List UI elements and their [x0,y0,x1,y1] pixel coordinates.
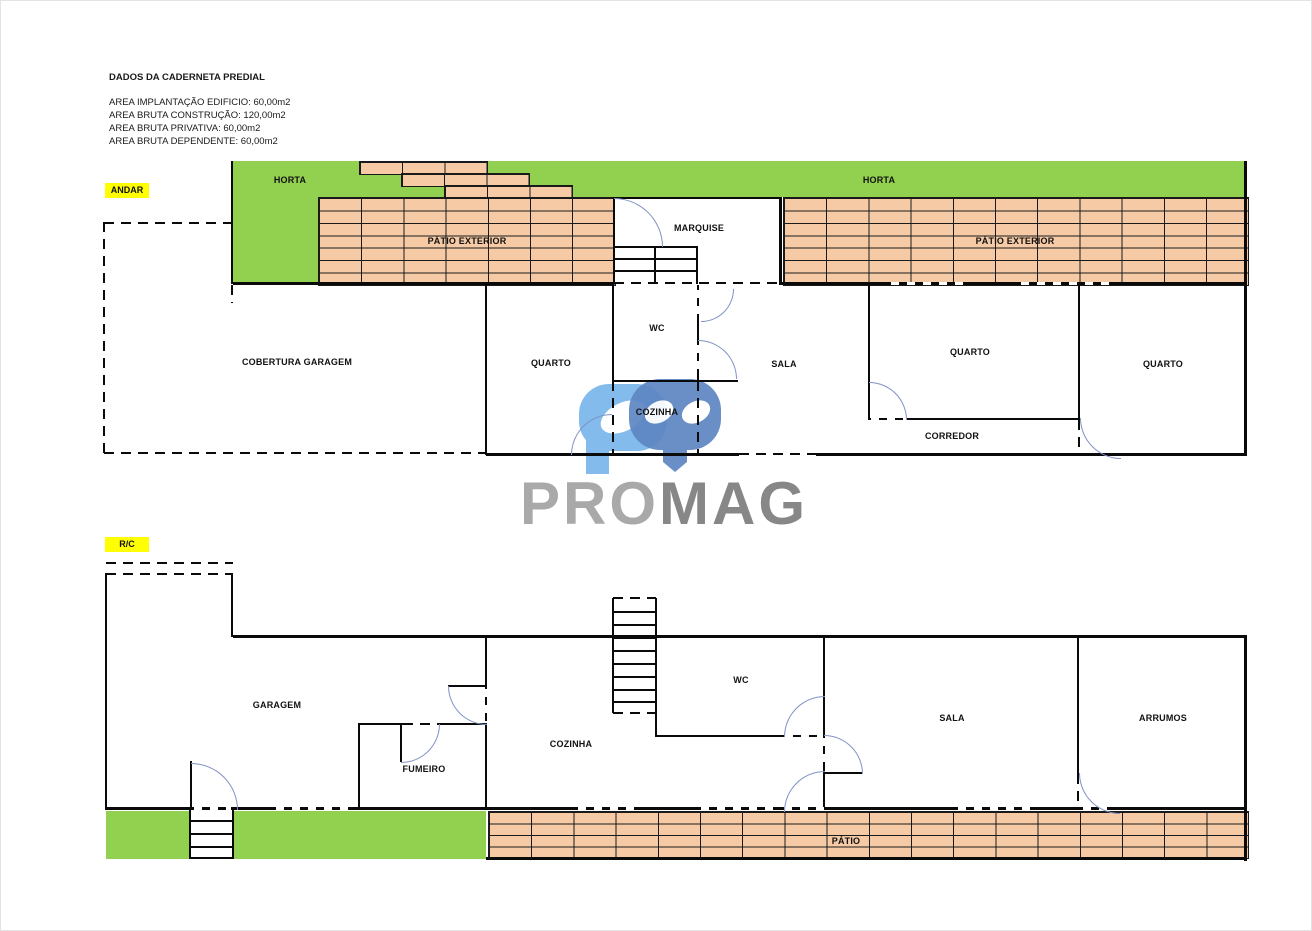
wall [1244,635,1247,861]
wall [233,635,1247,638]
wc-rc-label: WC [733,675,748,685]
door-arc [191,763,238,810]
wall [614,197,781,199]
stair-tread [614,270,698,272]
dashed-wall [103,222,105,455]
door-arc [698,340,737,379]
window-dashes [701,807,781,810]
stair-tread [614,650,655,652]
quarto-3-label: QUARTO [1143,359,1183,369]
sala-andar-label: SALA [771,359,796,369]
wall [486,453,739,456]
stair-tread [614,258,698,260]
logo-text-pro: PRO [520,470,659,537]
header-line-construcao: AREA BRUTA CONSTRUÇÃO: 120,00m2 [109,109,290,122]
door-arc [401,724,440,763]
wall [231,161,233,284]
patio-tiles-rc [488,811,1249,859]
header-line-dependente: AREA BRUTA DEPENDENTE: 60,00m2 [109,135,290,148]
door-arc [448,686,487,725]
door-leaf [698,380,738,382]
door-arc [701,289,734,322]
wall [485,285,487,455]
arrumos-label: ARRUMOS [1139,713,1187,723]
garagem-label: GARAGEM [253,700,301,710]
grass-strip-rc [106,811,486,859]
horta-grass-left-column [233,197,318,284]
cozinha-andar-label: COZINHA [636,407,678,417]
marquise-label: MARQUISE [674,223,724,233]
andar-floor-tag: ANDAR [105,183,149,198]
floorplan-canvas: DADOS DA CADERNETA PREDIAL AREA IMPLANTA… [0,0,1312,931]
dashed-wall [106,562,233,564]
stair-tread [614,611,655,613]
quarto-1-label: QUARTO [531,358,571,368]
patio-exterior-label-right: PÁTIO EXTERIOR [976,236,1055,246]
sala-rc-label: SALA [939,713,964,723]
window-dashes [578,807,641,810]
stair-dashed-edge [613,597,656,599]
wall [105,573,107,809]
wall [1244,161,1247,456]
header-line-privativa: AREA BRUTA PRIVATIVA: 60,00m2 [109,122,290,135]
dashed-wall [231,285,233,303]
stair-tread [614,689,655,691]
patio-exterior-label-left: PÁTIO EXTERIOR [428,236,507,246]
stair-rail [654,246,656,284]
door-arc [784,771,825,812]
stair-tread [614,637,655,639]
stair-tread [190,846,233,848]
door-arc [571,414,612,455]
patio-label: PÁTIO [832,836,861,846]
window-dashes [276,807,356,810]
wall [1078,284,1080,420]
window-dashes [958,807,1034,810]
stair-rail [696,246,698,284]
dashed-wall [739,453,816,455]
stair-rail [655,598,657,737]
door-arc [869,382,907,420]
wall [779,197,782,285]
cobertura-garagem-label: COBERTURA GARAGEM [242,357,352,367]
horta-label-left: HORTA [274,175,306,185]
horta-label-right: HORTA [863,175,895,185]
stair-dashed-edge [613,712,656,714]
stair-tread [614,663,655,665]
wall [781,282,1247,285]
stair-tread [614,701,655,703]
wall [486,857,1247,860]
rc-floor-tag: R/C [105,537,149,552]
wall [612,380,699,382]
header-line-implantacao: AREA IMPLANTAÇÃO EDIFICIO: 60,00m2 [109,96,290,109]
wall [358,723,360,809]
header-title: DADOS DA CADERNETA PREDIAL [109,72,290,83]
corredor-label: CORREDOR [925,431,979,441]
door-arc [824,735,863,774]
stair-rail [612,598,614,713]
window-dashes [1021,282,1116,285]
door-opening-dashes [697,290,699,318]
wall [231,573,233,637]
wall [612,285,614,381]
caderneta-header: DADOS DA CADERNETA PREDIAL AREA IMPLANTA… [109,72,290,148]
door-arc [784,696,825,737]
logo-text-mag: MAG [659,470,808,537]
wall [358,723,403,725]
wall [233,282,614,285]
dashed-wall [697,381,699,453]
stair-tread [190,820,233,822]
dashed-wall [106,573,233,575]
wall [1077,637,1079,775]
window-dashes [891,282,966,285]
cozinha-rc-label: COZINHA [550,739,592,749]
fumeiro-label: FUMEIRO [403,764,446,774]
promag-logo-text: PROMAG [499,475,829,533]
quarto-2-label: QUARTO [950,347,990,357]
wall [816,453,1247,456]
stair-tread [190,833,233,835]
dashed-wall [612,381,614,453]
dashed-wall [104,452,487,454]
wc-andar-label: WC [649,323,664,333]
stair-tread [614,676,655,678]
dashed-wall [104,222,233,224]
stair-tread [614,624,655,626]
